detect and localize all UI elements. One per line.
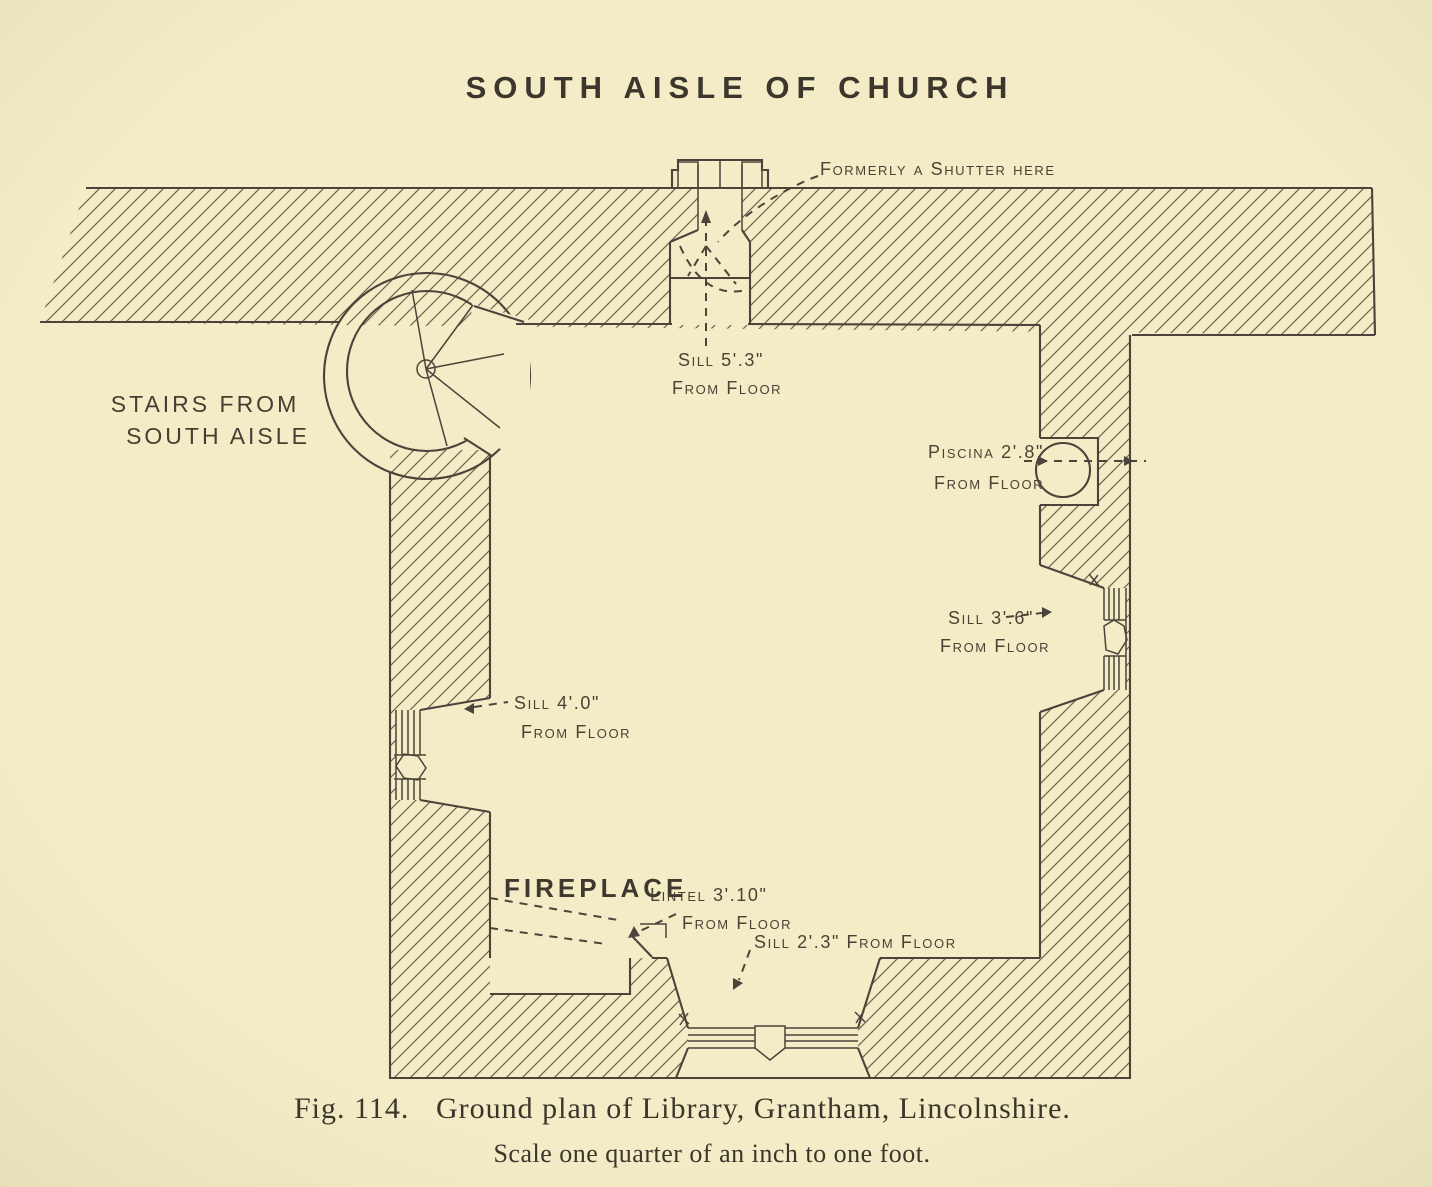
scanned-book-page: SOUTH AISLE OF CHURCH STAIRS FROM SOUTH … [0, 0, 1432, 1187]
label-piscina-1: Piscina 2'.8" [928, 442, 1044, 462]
label-sill-east-2: From Floor [940, 636, 1050, 656]
label-sill-west-2: From Floor [521, 722, 631, 742]
label-stairs-line2: SOUTH AISLE [126, 423, 310, 449]
caption-scale: Scale one quarter of an inch to one foot… [493, 1139, 930, 1168]
fireplace-bracket [640, 924, 666, 938]
south-window [667, 958, 880, 1078]
label-sill-east-1: Sill 3'.6" [948, 608, 1034, 628]
south-window-slit [688, 1028, 858, 1048]
fireplace-recess [490, 958, 630, 994]
label-sill-north-2: From Floor [672, 378, 782, 398]
label-sill-west-1: Sill 4'.0" [514, 693, 600, 713]
east-window-slit [1104, 588, 1126, 690]
label-stairs-line1: STAIRS FROM [111, 391, 299, 417]
caption-fig-number: Fig. 114. [294, 1092, 409, 1125]
fireplace-lintel-dashed [490, 898, 618, 944]
north-window-reveal [670, 160, 750, 325]
floor-plan-figure: SOUTH AISLE OF CHURCH STAIRS FROM SOUTH … [0, 0, 1432, 1187]
caption-text: Ground plan of Library, Grantham, Lincol… [436, 1092, 1071, 1125]
north-window-jamb-block-left [678, 162, 698, 188]
label-sill-south: Sill 2'.3" From Floor [754, 932, 957, 952]
label-lintel-2: From Floor [682, 913, 792, 933]
label-piscina-2: From Floor [934, 473, 1044, 493]
north-window-jamb-block-right [742, 162, 762, 188]
turret-doorway-opening [464, 304, 530, 456]
west-window-reveal [420, 698, 490, 812]
label-shutter: Formerly a Shutter here [820, 159, 1056, 179]
west-window [394, 698, 490, 812]
south-window-reveal [667, 958, 880, 1028]
label-sill-north-1: Sill 5'.3" [678, 350, 764, 370]
fireplace-pier-chamfer [632, 936, 652, 957]
figure-title: SOUTH AISLE OF CHURCH [466, 70, 1015, 105]
lintel-arrowhead [628, 926, 640, 938]
south-window-outer-recess [676, 1048, 870, 1078]
label-lintel-1: Lintel 3'.10" [650, 885, 768, 905]
lintel-leader [638, 914, 676, 932]
piscina [1036, 438, 1098, 505]
